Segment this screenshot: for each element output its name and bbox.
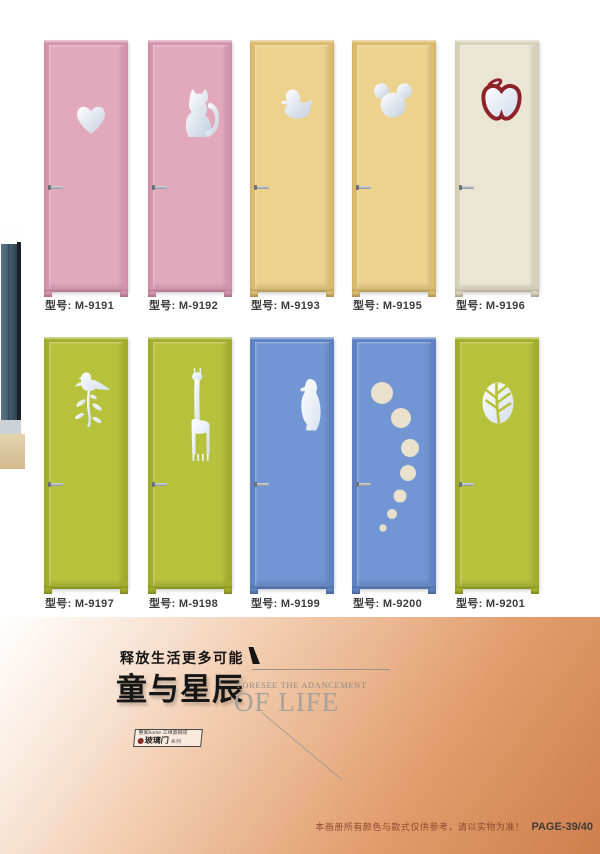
door-m-9196 [455, 40, 539, 292]
giraffe-cutout-icon [183, 368, 213, 465]
door-handle [356, 483, 371, 486]
door-handle [459, 483, 474, 486]
door-handle [48, 186, 63, 189]
model-label: 型号: M-9201 [456, 595, 566, 611]
door-m-9195 [352, 40, 436, 292]
model-label: 型号: M-9192 [149, 297, 259, 313]
series-suffix: 系列 [170, 739, 181, 745]
photo-skirting [0, 420, 21, 434]
penguin-cutout-icon [298, 378, 323, 433]
model-label: 型号: M-9198 [149, 595, 259, 611]
photo-door-panel [1, 244, 17, 420]
model-label: 型号: M-9195 [353, 297, 463, 313]
footer-banner: 释放生活更多可能 童与星辰 FORESEE THE ADANCEMENT OF … [0, 617, 600, 854]
diagonal-line-decoration [261, 712, 342, 780]
door-handle [152, 186, 167, 189]
door-handle [254, 483, 269, 486]
room-photo-fragment [0, 231, 25, 469]
model-label: 型号: M-9191 [45, 297, 155, 313]
subtitle-en-large: OF LIFE [234, 689, 339, 716]
door-m-9197 [44, 337, 128, 589]
divider-line [252, 669, 390, 670]
series-logo-dot-icon [137, 738, 144, 744]
heart-cutout-icon [74, 100, 108, 136]
door-m-9198 [148, 337, 232, 589]
model-label: 型号: M-9199 [251, 595, 361, 611]
disclaimer-text: 本画册所有颜色与款式仅供参考，请以实物为准！ [315, 822, 524, 832]
door-slab [255, 45, 329, 289]
leaf-cutout-icon [480, 380, 516, 426]
model-label: 型号: M-9197 [45, 595, 155, 611]
door-m-9201 [455, 337, 539, 589]
brush-mark-decoration [246, 647, 260, 664]
mickey-cutout-icon [373, 82, 413, 119]
door-slab [460, 342, 534, 586]
door-m-9200 [352, 337, 436, 589]
catalog-page: 型号: M-9191 型号: M-9192 型号: M-9193 型号: M-9… [0, 0, 600, 854]
door-handle [459, 186, 474, 189]
door-handle [356, 186, 371, 189]
series-name: 玻璃门 [144, 736, 169, 745]
door-m-9199 [250, 337, 334, 589]
door-slab [49, 45, 123, 289]
door-handle [48, 483, 63, 486]
model-label: 型号: M-9193 [251, 297, 361, 313]
door-m-9191 [44, 40, 128, 292]
photo-wood-floor [0, 434, 25, 469]
brand-title: 童与星辰 [116, 674, 244, 706]
slogan-text: 释放生活更多可能 [120, 648, 244, 668]
series-logo-box: 整家home 三维直销店 玻璃门 系列 [133, 729, 203, 747]
page-number: PAGE-39/40 [531, 821, 593, 833]
cat-cutout-icon [177, 85, 222, 140]
apple-cutout-icon [480, 78, 523, 126]
door-m-9192 [148, 40, 232, 292]
bubbles-cutout-icon [352, 337, 436, 589]
series-box-line2: 玻璃门 系列 [137, 736, 198, 747]
door-handle [254, 186, 269, 189]
model-label: 型号: M-9196 [456, 297, 566, 313]
photo-door-edge [17, 242, 21, 422]
door-handle [152, 483, 167, 486]
door-slab [153, 45, 227, 289]
photo-door-seam [8, 244, 9, 420]
footer-note: 本画册所有颜色与款式仅供参考，请以实物为准！PAGE-39/40 [315, 817, 593, 835]
door-m-9193 [250, 40, 334, 292]
bird-flower-cutout-icon [72, 371, 111, 433]
duck-cutout-icon [277, 87, 315, 123]
model-label: 型号: M-9200 [353, 595, 463, 611]
